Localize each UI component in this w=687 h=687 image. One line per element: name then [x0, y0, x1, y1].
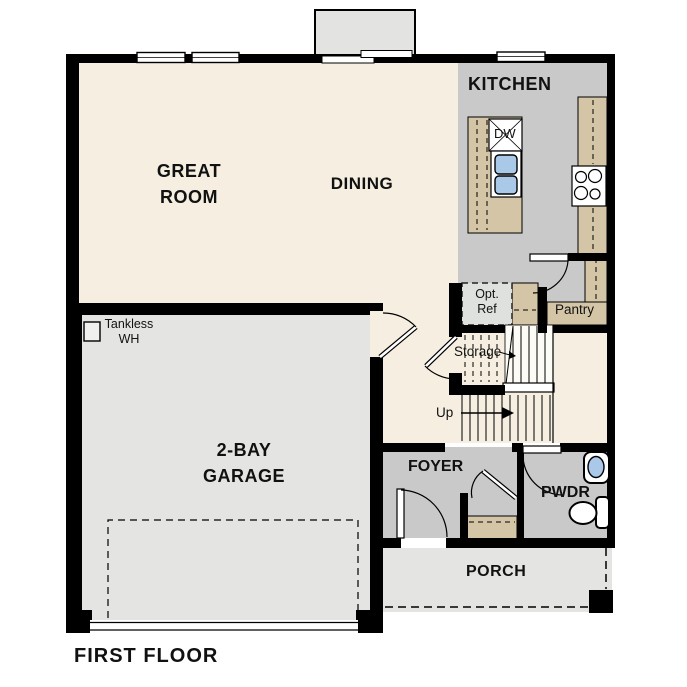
wall-pantry-left — [538, 287, 547, 333]
stairs-landing — [503, 383, 554, 392]
wall-foyer-top-right — [560, 443, 607, 452]
foyer-label: FOYER — [408, 458, 463, 476]
wall-closet-left — [460, 493, 468, 540]
wall-powder-left — [517, 449, 524, 538]
wall-garage-top — [66, 303, 382, 315]
great-room-label-line2: ROOM — [143, 184, 235, 210]
wall-under-storage — [452, 385, 505, 395]
optional-ref-label-line1: Opt. — [462, 287, 512, 302]
optional-ref-label-line2: Ref — [462, 302, 512, 317]
wall-foyer-top-left — [377, 443, 445, 452]
window-kitchen — [497, 52, 545, 62]
great-room-label: GREAT ROOM — [143, 158, 235, 210]
window-great-room-1 — [137, 53, 185, 63]
garage-entry-opening — [370, 311, 383, 357]
dishwasher-label: DW — [494, 126, 516, 141]
tankless-wh-label-line2: WH — [100, 332, 158, 347]
wall-under-optref — [450, 325, 505, 333]
tankless-water-heater — [84, 322, 100, 341]
sliding-door-panel-2 — [361, 51, 412, 58]
kitchen-label: KITCHEN — [468, 74, 566, 95]
garage-label-line1: 2-BAY — [193, 437, 295, 463]
closet-shelf — [467, 516, 517, 540]
tankless-wh-label-line1: Tankless — [100, 317, 158, 332]
window-great-room-2 — [192, 53, 239, 63]
wall-left-great-room — [66, 54, 79, 310]
great-room-label-line1: GREAT — [143, 158, 235, 184]
pantry-label: Pantry — [555, 302, 594, 317]
cooktop — [572, 166, 606, 206]
plan-title: FIRST FLOOR — [74, 645, 218, 668]
wall-pantry-top — [568, 253, 607, 261]
garage-door-opening — [90, 620, 358, 633]
wall-garage-corner-left — [66, 610, 92, 633]
garage-label-line2: GARAGE — [193, 463, 295, 489]
porch-label: PORCH — [466, 563, 526, 581]
garage-label: 2-BAY GARAGE — [193, 437, 295, 489]
tankless-wh-label: Tankless WH — [100, 317, 158, 347]
powder-sink — [584, 452, 609, 483]
wall-under-pantry — [553, 325, 607, 333]
dining-label: DINING — [322, 174, 402, 194]
floor-plan: GREAT ROOM DINING KITCHEN 2-BAY GARAGE F… — [0, 0, 687, 687]
kitchen-sink — [491, 151, 521, 197]
wall-porch-corner — [589, 590, 613, 613]
optional-ref-label: Opt. Ref — [462, 287, 512, 317]
up-label: Up — [436, 405, 453, 420]
wall-garage-corner-right — [356, 610, 382, 633]
powder-room-label: PWDR — [541, 484, 590, 502]
ref-side-counter — [512, 283, 538, 325]
storage-label: Storage — [454, 344, 501, 359]
front-door-opening — [401, 538, 446, 548]
wall-garage-left — [66, 303, 82, 633]
